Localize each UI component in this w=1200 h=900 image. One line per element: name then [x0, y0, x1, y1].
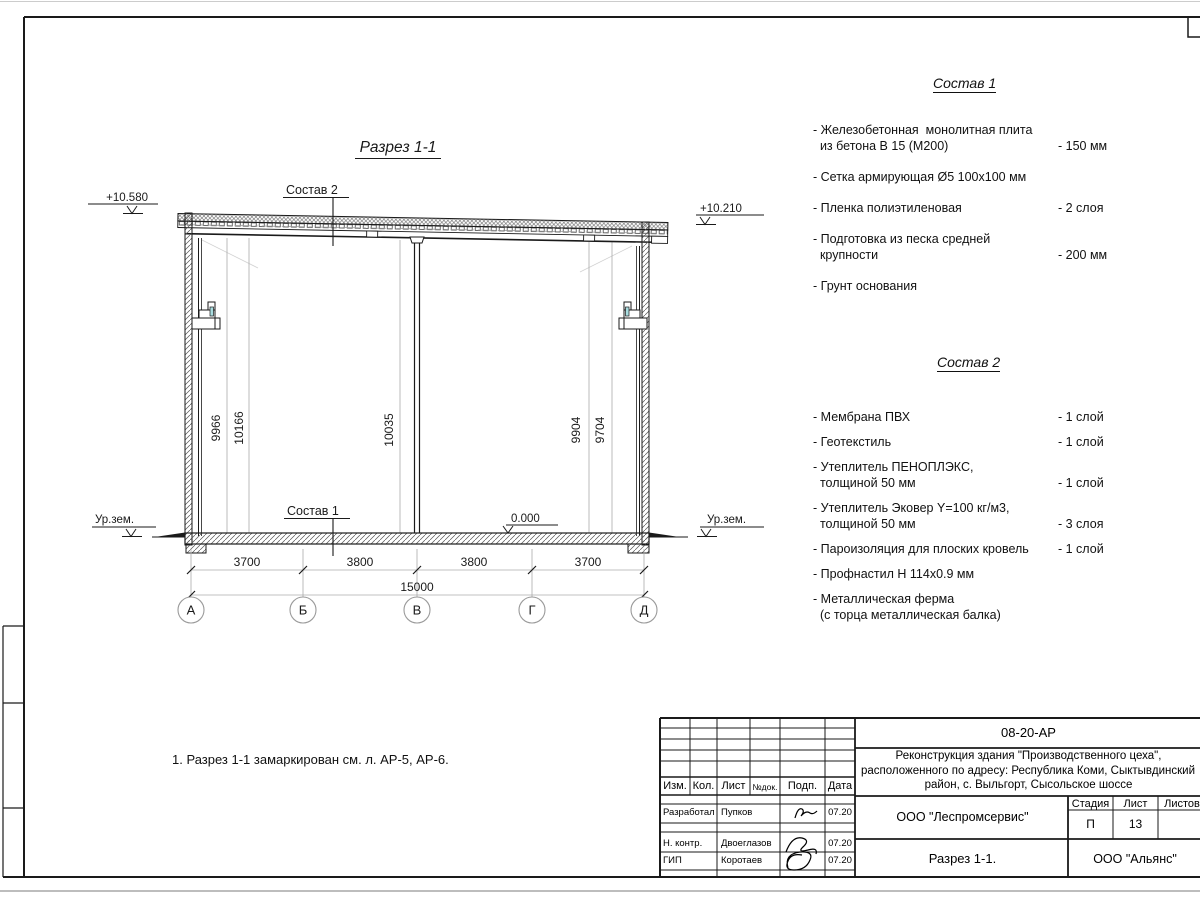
- section-title: Разрез 1-1: [360, 139, 437, 156]
- col-podp: Подп.: [780, 780, 825, 793]
- list-item: - Утеплитель ПЕНОПЛЭКС, толщиной 50 мм -…: [813, 459, 1200, 491]
- name-razrabotal: Пупков: [721, 808, 752, 819]
- client-name: ООО "Альянс": [1070, 852, 1200, 866]
- col-izm: Изм.: [660, 780, 690, 793]
- left-margin-stamps: [3, 626, 24, 877]
- teal-detail: [626, 307, 630, 316]
- sostav2-ref-label: Состав 2: [286, 183, 338, 197]
- ground-level-left-label: Ур.зем.: [95, 514, 134, 526]
- list-item: - Железобетонная монолитная плита из бет…: [813, 122, 1200, 154]
- svg-text:9966: 9966: [209, 414, 223, 441]
- sostav1-title: Состав 1: [933, 75, 996, 93]
- list-item: - Металлическая ферма (с торца металличе…: [813, 591, 1200, 623]
- svg-text:9904: 9904: [569, 416, 583, 443]
- list-item: - Профнастил Н 114х0.9 мм: [813, 566, 1200, 582]
- left-wall: [185, 213, 202, 545]
- col-data: Дата: [825, 780, 855, 793]
- total-dimension: 15000: [400, 580, 434, 594]
- sostav1-ref-label: Состав 1: [287, 504, 339, 518]
- elevation-roof-right: +10.210: [700, 203, 742, 215]
- svg-text:9704: 9704: [593, 416, 607, 443]
- date-gip: 07.20: [825, 856, 855, 867]
- axis-g: Г: [528, 603, 535, 618]
- purlin: [584, 235, 595, 241]
- project-line1: Реконструкция здания "Производственного …: [857, 750, 1200, 763]
- doc-number: 08-20-АР: [857, 726, 1200, 741]
- list-item: - Утеплитель Эковер Y=100 кг/м3, толщино…: [813, 500, 1200, 532]
- stage-label: Стадия: [1068, 798, 1113, 811]
- list-item: - Подготовка из песка средней крупности …: [813, 231, 1200, 263]
- svg-text:3700: 3700: [234, 555, 261, 569]
- bottom-dimensions: 3700 3800 3800 3700 15000: [187, 549, 648, 599]
- role-razrabotal: Разработал: [663, 808, 715, 819]
- drawing-note: 1. Разрез 1-1 замаркирован см. л. АР-5, …: [172, 752, 449, 767]
- name-nkontr: Двоеглазов: [721, 839, 772, 850]
- svg-text:3800: 3800: [461, 555, 488, 569]
- date-nkontr: 07.20: [825, 839, 855, 850]
- list-item: - Пленка полиэтиленовая - 2 слоя: [813, 200, 1200, 216]
- name-gip: Коротаев: [721, 856, 762, 867]
- elevation-roof-left: +10.580: [106, 192, 148, 204]
- signature-razrabotal: [795, 809, 817, 818]
- list-item: - Пароизоляция для плоских кровель - 1 с…: [813, 541, 1200, 557]
- date-razrabotal: 07.20: [825, 808, 855, 819]
- list-item: - Мембрана ПВХ - 1 слой: [813, 409, 1200, 425]
- drawing-sheet: Разрез 1-1 9966 10166 10035 9904 9704: [0, 0, 1200, 900]
- right-foundation: [628, 544, 649, 553]
- project-line3: район, с. Выльгорт, Сысольское шоссе: [857, 779, 1200, 792]
- height-dimensions: 9966 10166 10035 9904 9704: [209, 411, 607, 447]
- role-nkontr: Н. контр.: [663, 839, 702, 850]
- purlin: [367, 231, 378, 237]
- sheets-label: Листов: [1158, 798, 1200, 811]
- svg-text:10035: 10035: [382, 413, 396, 447]
- list-item: - Геотекстиль - 1 слой: [813, 434, 1200, 450]
- project-line2: расположенного по адресу: Республика Ком…: [861, 765, 1195, 778]
- signatures: [786, 809, 817, 870]
- org-name: ООО "Леспромсервис": [857, 810, 1068, 824]
- sheet-title: Разрез 1-1.: [857, 852, 1068, 867]
- svg-text:3800: 3800: [347, 555, 374, 569]
- sostav2-list: - Мембрана ПВХ - 1 слой - Геотекстиль - …: [813, 409, 1200, 632]
- center-column: [410, 237, 424, 533]
- axis-b: Б: [299, 603, 308, 618]
- section-drawing: Разрез 1-1 9966 10166 10035 9904 9704: [88, 139, 764, 623]
- list-item: - Грунт основания: [813, 278, 1200, 294]
- format-box-corner: [1188, 17, 1200, 37]
- role-gip: ГИП: [663, 856, 682, 867]
- dim-values: 3700 3800 3800 3700 15000: [234, 555, 602, 594]
- roof-edge-detail: [652, 236, 668, 243]
- stage-value: П: [1068, 818, 1113, 832]
- col-ndoc: №док.: [750, 783, 780, 793]
- axis-v: В: [413, 603, 422, 618]
- axis-d: Д: [640, 603, 649, 618]
- sostav1-list: - Железобетонная монолитная плита из бет…: [813, 122, 1200, 309]
- sheet-number: 13: [1113, 818, 1158, 832]
- left-foundation: [186, 544, 206, 553]
- elevation-floor: 0.000: [511, 513, 540, 525]
- svg-text:10166: 10166: [232, 411, 246, 445]
- right-wall: [637, 222, 650, 545]
- axis-bubbles: А Б В Г Д: [178, 597, 657, 623]
- col-kol: Кол.: [690, 780, 717, 793]
- left-wall-bracket: [192, 302, 220, 329]
- sostav2-title: Состав 2: [937, 354, 1000, 372]
- axis-a: А: [187, 603, 196, 618]
- signature-gip: [787, 852, 811, 870]
- col-list: Лист: [717, 780, 750, 793]
- teal-detail: [210, 307, 214, 316]
- sheet-label: Лист: [1113, 798, 1158, 811]
- list-item: - Сетка армирующая Ø5 100х100 мм: [813, 169, 1200, 185]
- svg-text:3700: 3700: [575, 555, 602, 569]
- ground-level-right-label: Ур.зем.: [707, 514, 746, 526]
